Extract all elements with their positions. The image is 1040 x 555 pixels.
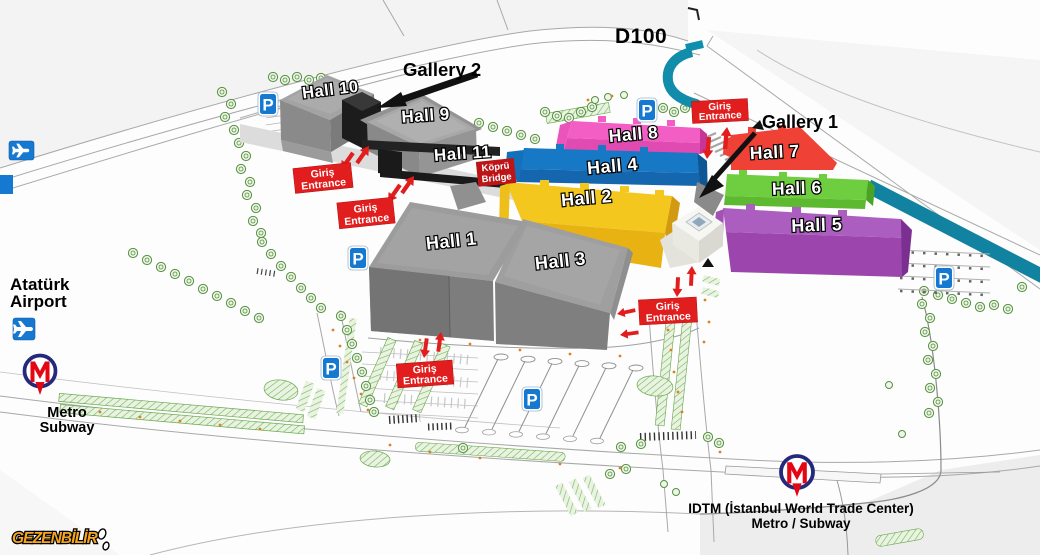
svg-text:Hall 9: Hall 9: [401, 104, 451, 126]
svg-text:Hall 7: Hall 7: [749, 141, 800, 164]
svg-text:Subway: Subway: [40, 420, 95, 436]
svg-text:Gallery 2: Gallery 2: [403, 59, 481, 80]
svg-text:Metro / Subway: Metro / Subway: [751, 516, 851, 531]
svg-text:Hall 5: Hall 5: [791, 214, 843, 236]
svg-text:Hall 6: Hall 6: [772, 177, 822, 199]
svg-text:Gallery 1: Gallery 1: [762, 112, 838, 132]
svg-text:Entrance: Entrance: [699, 110, 743, 123]
svg-text:GEZENBİLİR: GEZENBİLİR: [12, 530, 99, 547]
svg-text:IDTM (İstanbul World Trade Cen: IDTM (İstanbul World Trade Center): [688, 501, 914, 516]
svg-text:Airport: Airport: [10, 292, 67, 311]
svg-text:Metro: Metro: [47, 405, 87, 421]
svg-text:Entrance: Entrance: [646, 310, 692, 324]
svg-text:D100: D100: [615, 25, 667, 48]
